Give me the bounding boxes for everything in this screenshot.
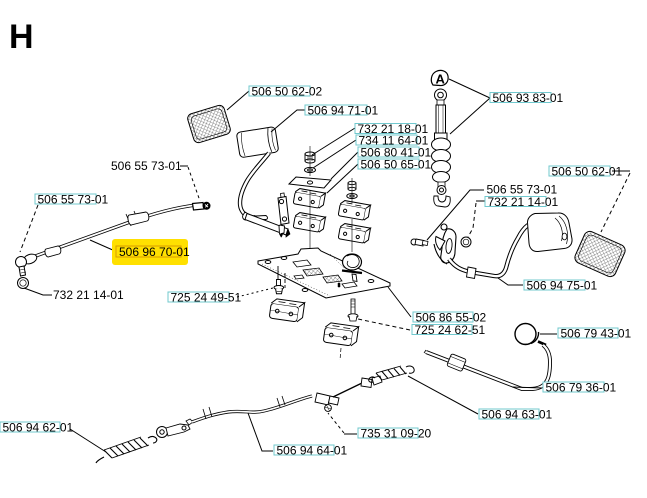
svg-text:506 96 70-01: 506 96 70-01 [119, 245, 190, 259]
svg-text:506 79 36-01: 506 79 36-01 [546, 381, 617, 395]
svg-text:506 94 75-01: 506 94 75-01 [527, 279, 598, 293]
svg-text:506 50 62-01: 506 50 62-01 [552, 165, 623, 179]
svg-text:506 93 83-01: 506 93 83-01 [493, 91, 564, 105]
svg-text:506 94 64-01: 506 94 64-01 [277, 444, 348, 458]
svg-text:725 24 62-51: 725 24 62-51 [415, 323, 486, 337]
svg-text:506 50 65-01: 506 50 65-01 [361, 158, 432, 172]
svg-text:506 50 62-02: 506 50 62-02 [252, 85, 323, 99]
svg-text:735 31 09-20: 735 31 09-20 [361, 427, 432, 441]
svg-text:506 94 62-01: 506 94 62-01 [3, 421, 74, 435]
svg-text:H: H [9, 18, 34, 56]
svg-text:506 55 73-01: 506 55 73-01 [111, 159, 182, 173]
svg-text:506 55 73-01: 506 55 73-01 [38, 193, 109, 207]
svg-text:732 21 14-01: 732 21 14-01 [488, 195, 559, 209]
svg-text:506 94 63-01: 506 94 63-01 [482, 408, 553, 422]
svg-text:A: A [436, 72, 446, 87]
svg-text:732 21 14-01: 732 21 14-01 [53, 288, 124, 302]
svg-text:506 94 71-01: 506 94 71-01 [308, 104, 379, 118]
svg-text:506 79 43-01: 506 79 43-01 [561, 327, 632, 341]
svg-text:725 24 49-51: 725 24 49-51 [171, 291, 242, 305]
